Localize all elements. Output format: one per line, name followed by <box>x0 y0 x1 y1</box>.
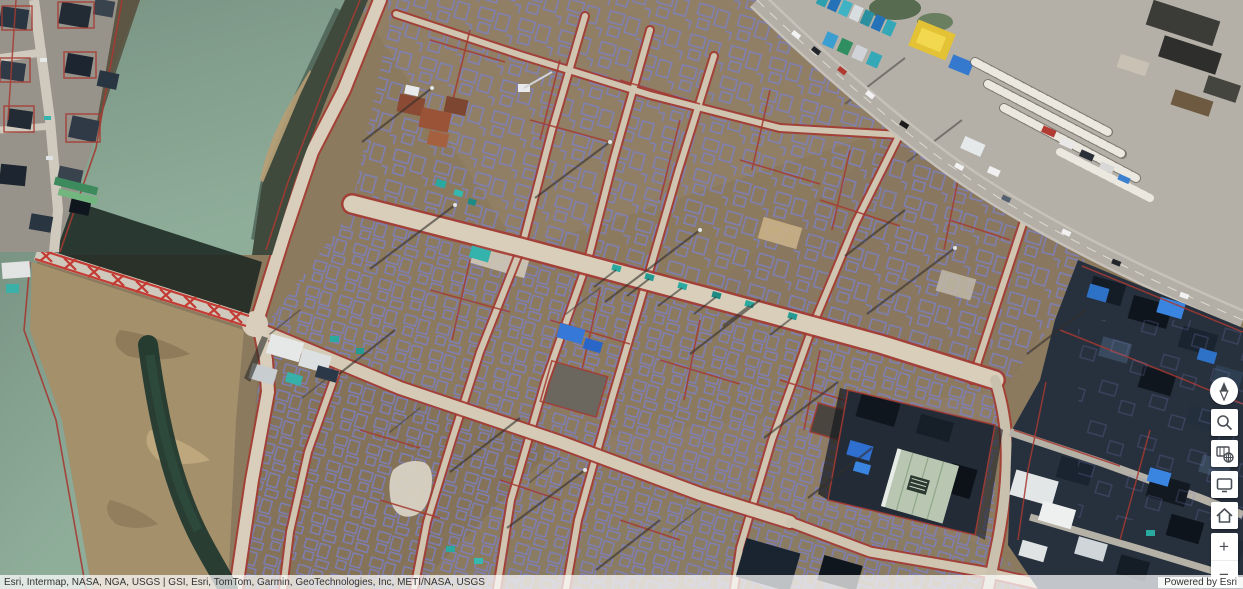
powered-by-esri: Powered by Esri <box>1158 577 1243 588</box>
basemap-gallery-icon <box>1211 440 1238 467</box>
attribution-sources: Esri, Intermap, NASA, NGA, USGS | GSI, E… <box>0 577 489 588</box>
map-toolbar: + − <box>1210 377 1238 588</box>
basemap-gallery-button[interactable] <box>1211 440 1238 467</box>
home-button[interactable] <box>1211 502 1238 529</box>
map-canvas[interactable] <box>0 0 1243 589</box>
search-icon <box>1211 409 1238 436</box>
map-app: + − Esri, Intermap, NASA, NGA, USGS | GS… <box>0 0 1243 589</box>
search-button[interactable] <box>1211 409 1238 436</box>
attribution-bar: Esri, Intermap, NASA, NGA, USGS | GSI, E… <box>0 575 1243 589</box>
compass-button[interactable] <box>1210 377 1238 405</box>
overview-map-button[interactable] <box>1211 471 1238 498</box>
overview-map-icon <box>1211 471 1238 498</box>
zoom-in-button[interactable]: + <box>1211 533 1238 561</box>
home-icon <box>1211 502 1238 529</box>
compass-icon <box>1210 377 1238 405</box>
zoom-in-icon: + <box>1219 538 1229 555</box>
